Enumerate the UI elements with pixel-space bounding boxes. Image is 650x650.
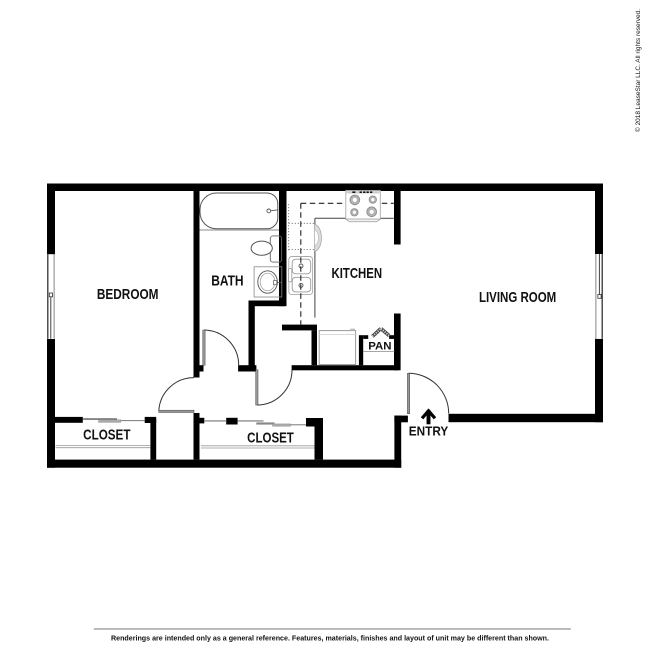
svg-text:LIVING ROOM: LIVING ROOM [479, 290, 556, 306]
svg-text:KITCHEN: KITCHEN [332, 266, 383, 282]
svg-text:CLOSET: CLOSET [83, 427, 130, 443]
svg-text:BATH: BATH [211, 274, 243, 290]
svg-text:ENTRY: ENTRY [409, 423, 449, 438]
svg-text:CLOSET: CLOSET [247, 430, 294, 446]
svg-text:Renderings are intended only a: Renderings are intended only as a genera… [111, 633, 549, 642]
svg-text:BEDROOM: BEDROOM [97, 287, 159, 303]
svg-text:© 2018 LeaseStar LLC. All righ: © 2018 LeaseStar LLC. All rights reserve… [634, 9, 642, 132]
svg-text:PAN: PAN [368, 341, 391, 353]
